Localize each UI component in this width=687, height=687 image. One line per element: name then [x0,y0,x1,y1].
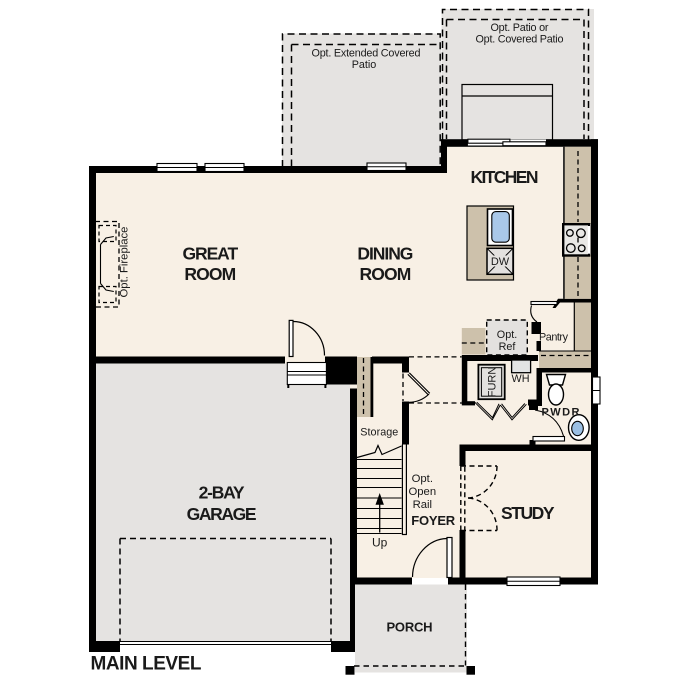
svg-text:WH: WH [512,373,530,385]
svg-text:Opt.: Opt. [412,473,433,485]
svg-text:FURN: FURN [486,367,498,398]
svg-text:Ref: Ref [499,341,517,353]
svg-text:Up: Up [372,535,388,549]
svg-text:Opt. Patio or: Opt. Patio or [491,22,549,34]
svg-text:Opt. Extended Covered: Opt. Extended Covered [312,47,421,59]
svg-text:PORCH: PORCH [387,620,433,635]
svg-text:2-BAY: 2-BAY [199,483,245,503]
svg-text:Opt.: Opt. [497,329,517,341]
svg-text:DINING: DINING [357,244,413,264]
svg-text:STUDY: STUDY [501,503,555,523]
svg-text:ROOM: ROOM [184,264,236,284]
svg-text:Patio: Patio [352,59,377,71]
svg-text:GARAGE: GARAGE [187,504,257,524]
svg-text:Pantry: Pantry [539,332,569,344]
svg-text:KITCHEN: KITCHEN [471,167,539,187]
svg-text:Storage: Storage [360,426,398,438]
svg-text:PWDR: PWDR [542,406,580,418]
svg-text:DW: DW [491,256,510,268]
svg-text:Open: Open [408,486,436,498]
svg-text:Rail: Rail [413,499,432,511]
svg-text:MAIN LEVEL: MAIN LEVEL [91,654,202,675]
svg-text:FOYER: FOYER [411,513,456,528]
svg-text:Opt. Fireplace: Opt. Fireplace [119,227,131,298]
svg-text:GREAT: GREAT [182,244,238,264]
svg-text:ROOM: ROOM [360,264,412,284]
svg-text:Opt. Covered Patio: Opt. Covered Patio [476,34,564,46]
